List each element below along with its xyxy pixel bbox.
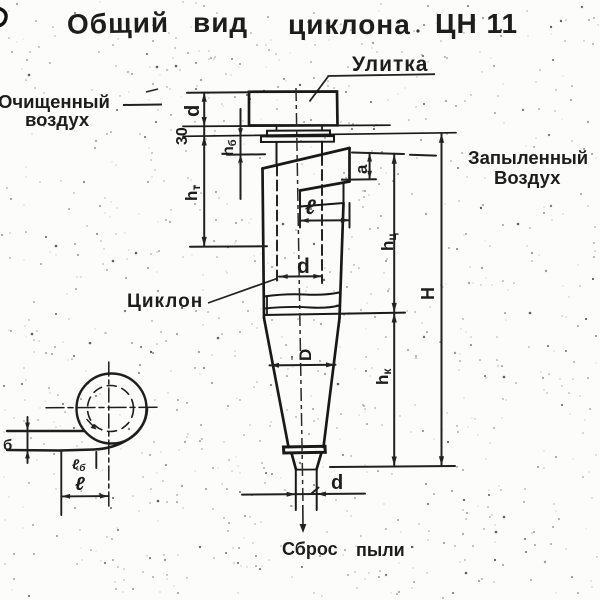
svg-text:D: D bbox=[296, 349, 315, 361]
svg-text:циклона: циклона bbox=[288, 9, 411, 40]
svg-text:hц: hц bbox=[378, 233, 399, 251]
svg-text:Общий: Общий bbox=[67, 7, 170, 40]
svg-text:H: H bbox=[418, 287, 438, 300]
svg-text:Воздух: Воздух bbox=[494, 167, 561, 188]
svg-text:Сброс: Сброс bbox=[282, 539, 338, 559]
svg-text:ℓб: ℓб bbox=[72, 456, 86, 474]
svg-text:d: d bbox=[331, 472, 343, 494]
svg-text:d: d bbox=[182, 105, 204, 117]
svg-text:d: d bbox=[297, 255, 310, 278]
svg-text:hб: hб bbox=[220, 139, 239, 156]
svg-text:б: б bbox=[3, 437, 12, 454]
svg-text:ℓ: ℓ bbox=[75, 474, 85, 495]
svg-text:ЦН 11: ЦН 11 bbox=[435, 8, 518, 39]
svg-text:a: a bbox=[352, 164, 371, 174]
svg-text:Циклон: Циклон bbox=[127, 291, 203, 312]
svg-text:ℓ: ℓ bbox=[305, 196, 316, 219]
svg-text:hк: hк bbox=[373, 368, 394, 385]
svg-text:воздух: воздух bbox=[25, 109, 90, 130]
svg-text:hт: hт bbox=[182, 185, 203, 201]
svg-text:Улитка: Улитка bbox=[352, 53, 428, 76]
svg-text:пыли: пыли bbox=[356, 540, 405, 560]
svg-text:вид: вид bbox=[193, 7, 248, 38]
svg-text:Запыленный: Запыленный bbox=[468, 147, 588, 168]
svg-text:30: 30 bbox=[174, 127, 191, 145]
